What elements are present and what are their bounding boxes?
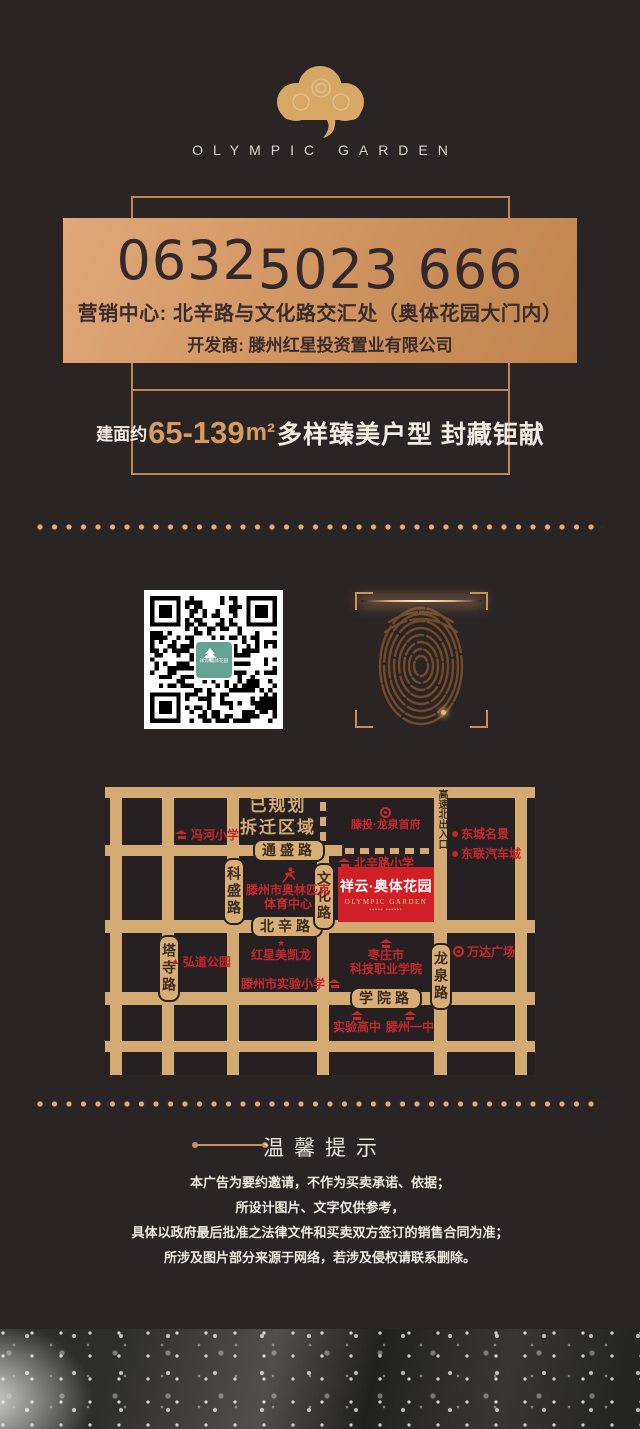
dot-divider-top xyxy=(37,524,603,530)
offer-tagline: 多样臻美户型 封藏钜献 xyxy=(277,415,545,451)
tips-line: 所设计图片、文字仅供参考， xyxy=(0,1195,640,1220)
runner-icon xyxy=(281,867,296,883)
phone-main: 5023 666 xyxy=(258,238,524,301)
offer-area-unit: m² xyxy=(246,419,275,447)
project-tagline: ▪▪▪▪▪ ▪▪▪▪▪▪ xyxy=(370,907,403,913)
phone-number: 06325023 666 xyxy=(63,231,577,291)
scan-corner-icon xyxy=(470,710,488,728)
road-label-kesheng: 科盛路 xyxy=(223,858,245,925)
contact-banner: 06325023 666 营销中心: 北辛路与文化路交汇处（奥体花园大门内） 开… xyxy=(63,218,577,363)
planned-zone-label: 已规划 拆迁区域 xyxy=(233,795,323,839)
poster: OLYMPIC GARDEN 06325023 666 营销中心: 北辛路与文化… xyxy=(0,0,640,1429)
poi-shiyan-high: 实验高中 xyxy=(333,1011,381,1034)
poi-tengzhou-no1: 滕州一中 xyxy=(386,1011,434,1034)
location-map: 通盛路 北辛路 学院路 科盛路 文化路 塔寺路 龙泉路 高速北出入口 已规划 拆… xyxy=(105,787,535,1075)
school-icon xyxy=(175,830,188,839)
road-tasi xyxy=(162,787,174,1075)
qr-logo-title: 祥云·奥体花园 xyxy=(199,657,228,663)
offer-area-range: 65-139 xyxy=(148,415,245,451)
dot-icon xyxy=(452,851,458,857)
poi-fenghe-primary: 冯河小学 xyxy=(175,826,239,843)
landmark-icon xyxy=(453,946,464,957)
project-latin-name: OLYMPIC GARDEN xyxy=(345,898,428,906)
scan-light-flare xyxy=(361,600,482,602)
poi-olympic-sports-center: 滕州市奥林匹克 体育中心 xyxy=(246,867,330,911)
tips-line: 具体以政府最后批准之法律文件和买卖双方签订的销售合同为准； xyxy=(0,1220,640,1245)
school-icon xyxy=(404,1011,417,1020)
poi-wanda-plaza: 万达广场 xyxy=(453,943,515,960)
dot-divider-bottom xyxy=(37,1101,603,1107)
tips-title: 温馨提示 xyxy=(0,1132,640,1162)
road-label-expressway: 高速北出入口 xyxy=(434,789,447,849)
fingerprint-scan xyxy=(355,592,488,728)
fingerprint-glow-dot xyxy=(441,710,446,715)
developer-name: 开发商: 滕州红星投资置业有限公司 xyxy=(63,331,577,356)
school-icon xyxy=(380,939,393,948)
dot-icon xyxy=(452,831,458,837)
tips-line: 本广告为要约邀请，不作为买卖承诺、依据； xyxy=(0,1170,640,1195)
brand-name: OLYMPIC GARDEN xyxy=(0,142,640,158)
poi-dongcheng: 东城名景 xyxy=(452,825,509,842)
offer-banner: 建面约 65-139 m² 多样臻美户型 封藏钜献 xyxy=(131,390,510,475)
poi-longquan-mansion: 滕投·龙泉首府 xyxy=(351,807,421,832)
school-icon xyxy=(351,1011,364,1020)
qr-center-logo: 祥云·奥体花园 xyxy=(194,640,234,680)
fingerprint-icon xyxy=(355,592,488,728)
road-label-xueyuan: 学院路 xyxy=(350,987,422,1010)
road-label-tongsheng: 通盛路 xyxy=(253,839,325,862)
poi-donglian-auto-city: 东联汽车城 xyxy=(452,845,521,862)
road-label-longquan: 龙泉路 xyxy=(430,943,452,1010)
project-location-block: 祥云·奥体花园 OLYMPIC GARDEN ▪▪▪▪▪ ▪▪▪▪▪▪ xyxy=(338,867,434,922)
road xyxy=(515,787,527,1075)
tips-line: 所涉及图片部分来源于网络，若涉及侵权请联系删除。 xyxy=(0,1245,640,1270)
cloud-logo-icon xyxy=(261,62,379,145)
star-icon: ★ xyxy=(277,939,285,948)
marketing-center-address: 营销中心: 北辛路与文化路交汇处（奥体花园大门内） xyxy=(63,297,577,326)
scan-corner-icon xyxy=(355,710,373,728)
project-name: 祥云·奥体花园 xyxy=(340,876,432,896)
bottom-texture-image xyxy=(0,1329,640,1429)
poi-shiyan-primary: 滕州市实验小学 xyxy=(241,975,341,992)
park-icon: ▲ xyxy=(171,957,180,966)
offer-prefix: 建面约 xyxy=(96,420,147,445)
school-icon xyxy=(328,979,341,988)
phone-area-code: 0632 xyxy=(116,229,257,292)
school-icon xyxy=(338,858,351,867)
road xyxy=(110,787,122,1075)
poi-hongxing: ★ 红星美凯龙 xyxy=(251,939,311,962)
tips-disclaimer: 本广告为要约邀请，不作为买卖承诺、依据； 所设计图片、文字仅供参考， 具体以政府… xyxy=(0,1170,640,1270)
poi-zaozhuang-college: 枣庄市 科技职业学院 xyxy=(350,939,422,976)
poi-hongdao-park: ▲ 弘道公园 xyxy=(171,953,231,970)
landmark-icon xyxy=(380,807,391,818)
wechat-qr-code: 祥云·奥体花园 xyxy=(144,590,283,729)
